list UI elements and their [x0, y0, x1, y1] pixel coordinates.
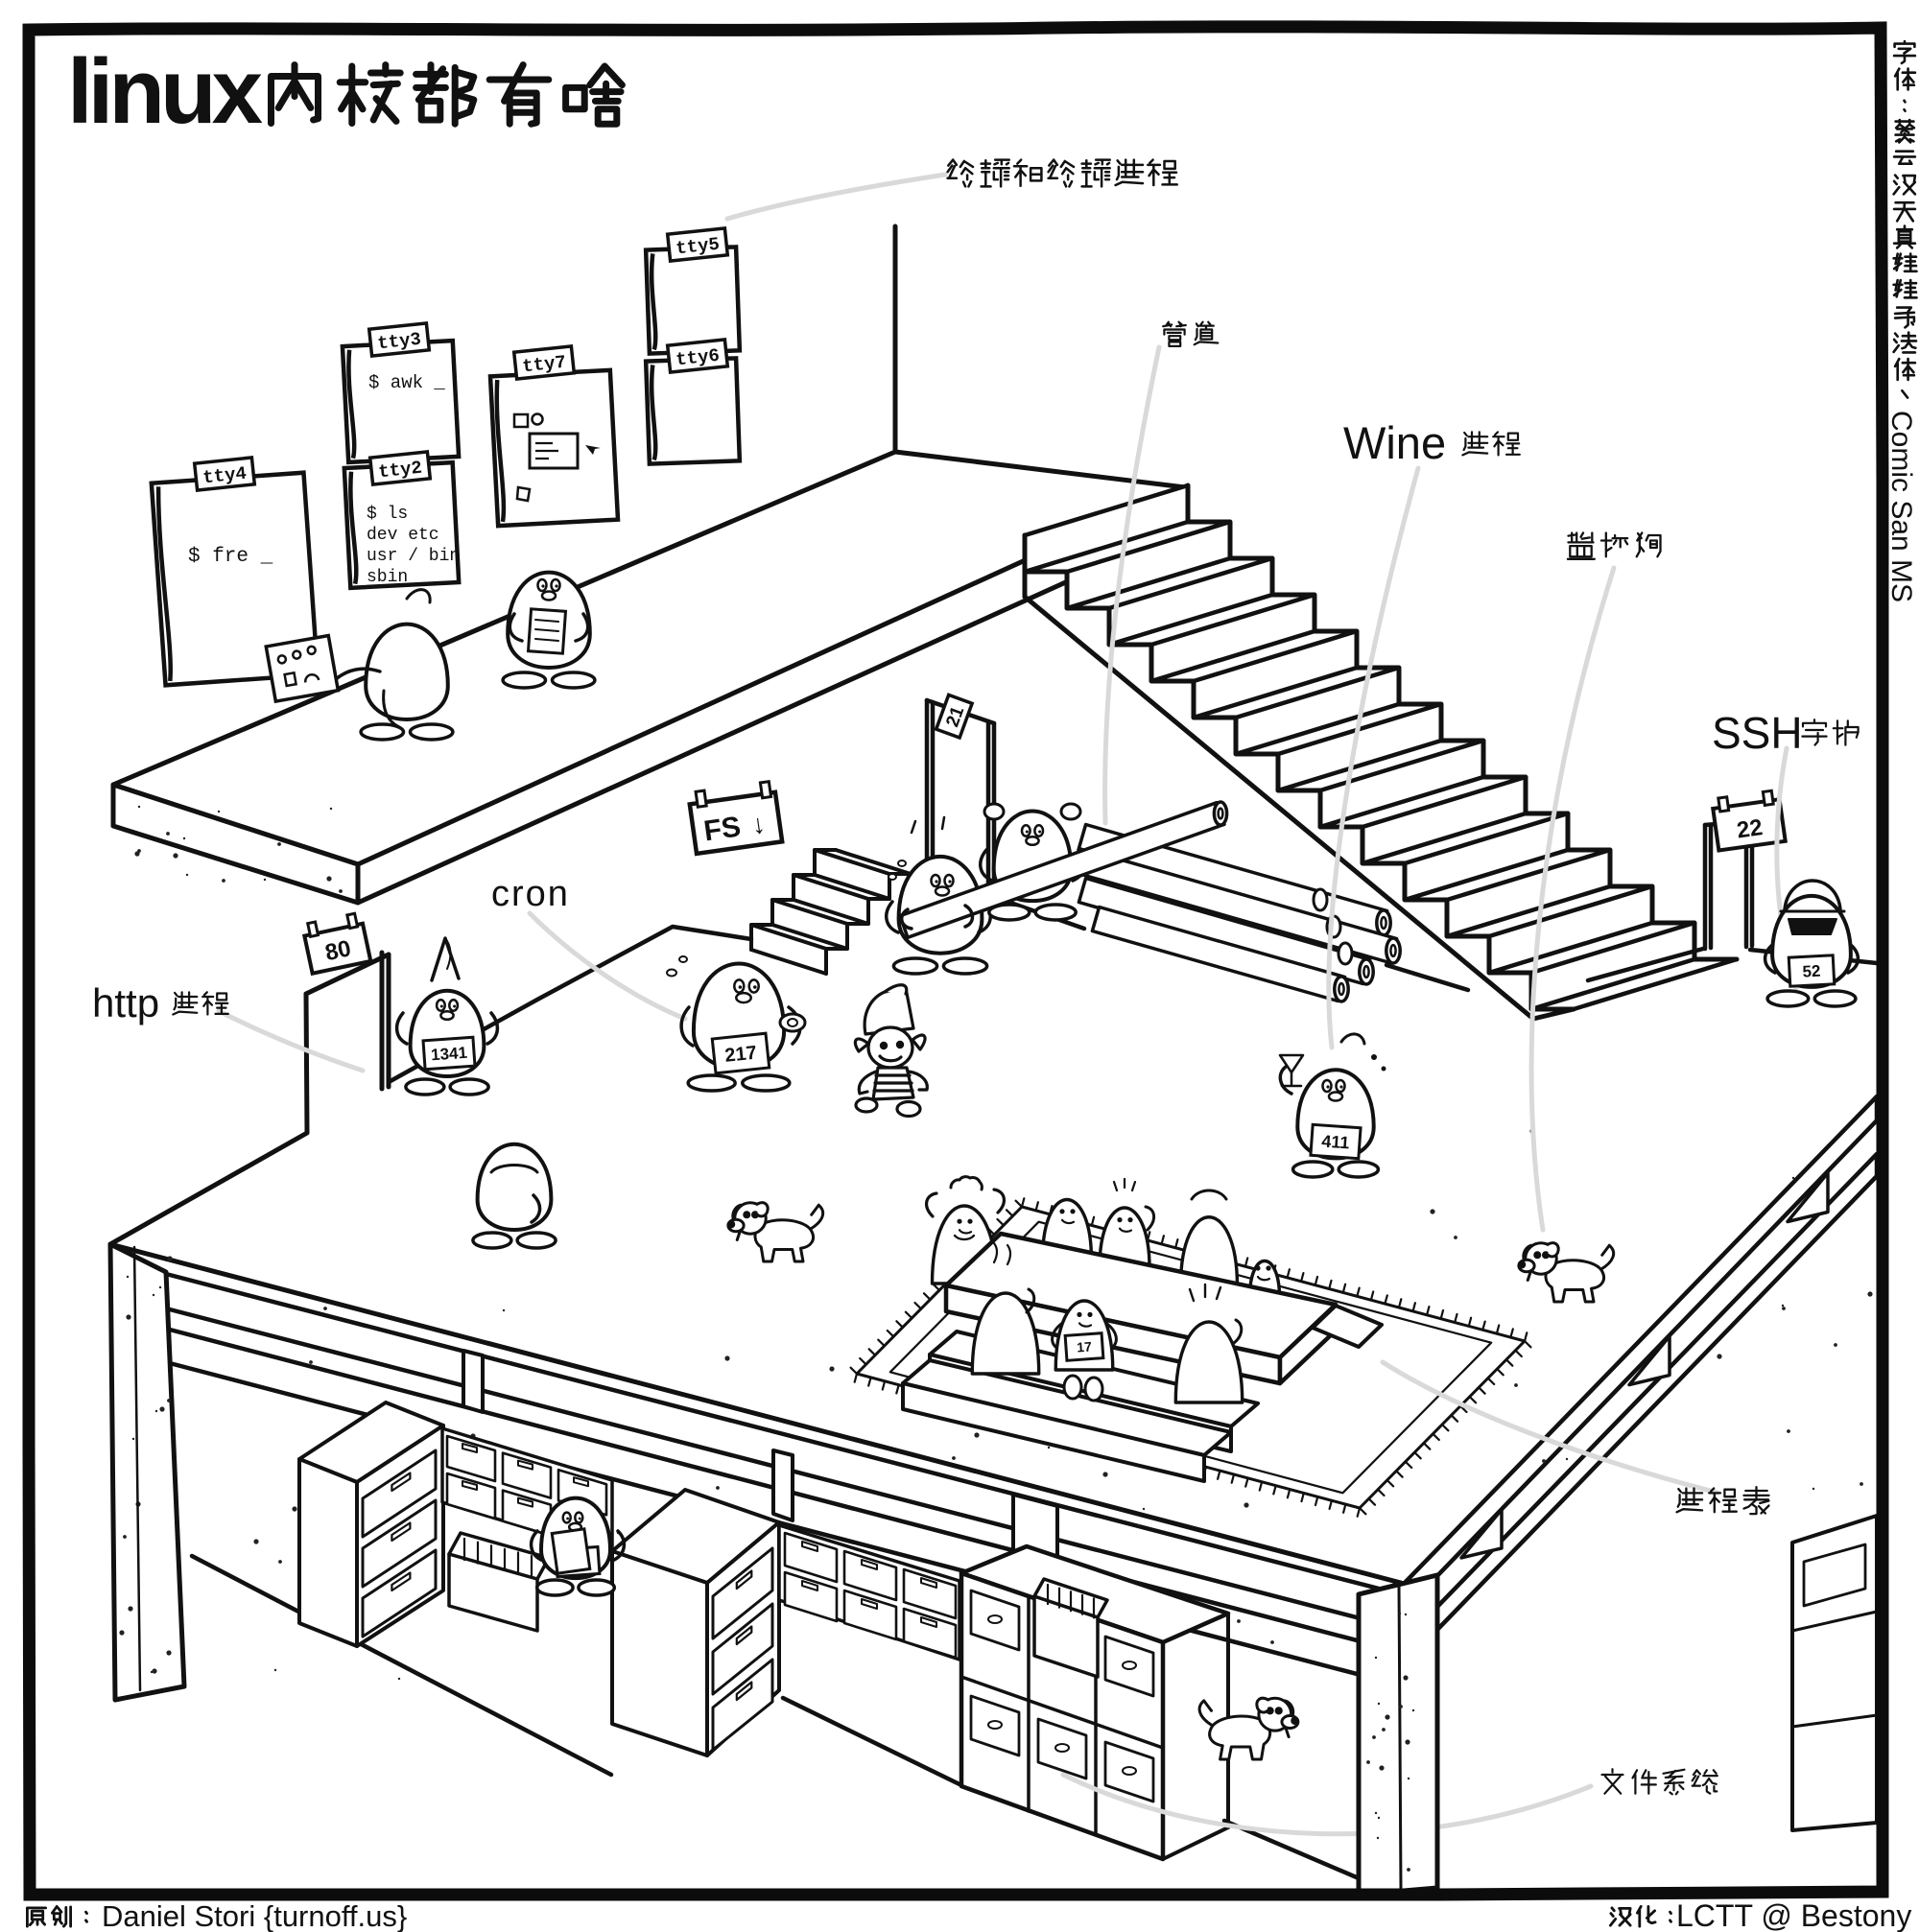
svg-text:$ awk _: $ awk _ [368, 372, 445, 393]
svg-text:17: 17 [1077, 1338, 1093, 1355]
svg-text:sbin: sbin [367, 568, 408, 587]
svg-text:80: 80 [322, 935, 353, 966]
svg-text:http: http [92, 980, 159, 1025]
svg-text:FS: FS [701, 811, 743, 847]
svg-text:217: 217 [723, 1043, 757, 1067]
svg-text:dev etc: dev etc [367, 526, 439, 545]
svg-text:usr / bin: usr / bin [367, 547, 460, 566]
svg-text:Daniel Stori {turnoff.us}: Daniel Stori {turnoff.us} [102, 1899, 407, 1932]
svg-text:1341: 1341 [431, 1044, 468, 1065]
svg-text:Wine: Wine [1343, 417, 1446, 468]
svg-text:52: 52 [1802, 962, 1821, 981]
svg-text:$ fre _: $ fre _ [188, 546, 273, 568]
svg-text:linux: linux [67, 40, 263, 143]
svg-text:Comic San MS: Comic San MS [1885, 411, 1917, 602]
svg-text:SSH: SSH [1712, 708, 1803, 758]
svg-text:cron: cron [491, 874, 570, 914]
svg-text:411: 411 [1321, 1132, 1350, 1153]
svg-text:LCTT @ Bestony: LCTT @ Bestony [1676, 1898, 1911, 1932]
svg-text:$ ls: $ ls [367, 505, 408, 524]
svg-text:22: 22 [1736, 814, 1765, 843]
